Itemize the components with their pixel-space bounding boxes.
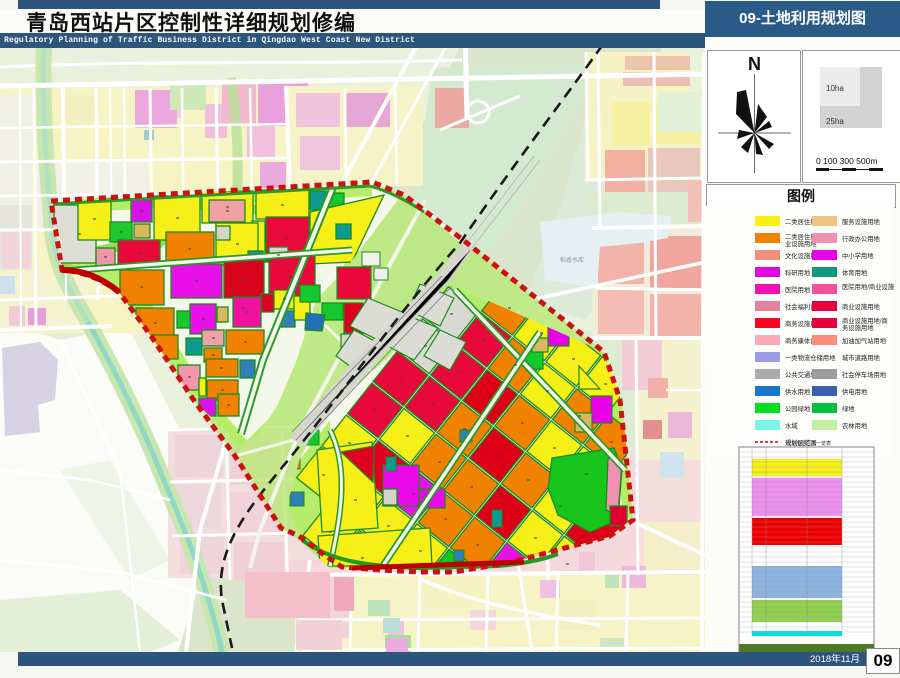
svg-text:25ha: 25ha [826, 117, 844, 126]
svg-text:供电用地: 供电用地 [842, 387, 868, 396]
svg-text:稻香水库: 稻香水库 [560, 256, 584, 264]
svg-text:医院用地/商业设施用地: 医院用地/商业设施用地 [842, 282, 894, 291]
svg-text:一类物流仓储用地: 一类物流仓储用地 [785, 353, 836, 362]
svg-text:体育用地: 体育用地 [842, 268, 868, 277]
svg-text:供水用地: 供水用地 [785, 387, 811, 396]
svg-text:水域: 水域 [785, 421, 798, 430]
svg-text:科研用地: 科研用地 [785, 268, 811, 277]
svg-text:10ha: 10ha [826, 84, 844, 93]
svg-text:服务设施用地: 服务设施用地 [842, 217, 880, 226]
svg-text:绿地: 绿地 [842, 404, 855, 413]
svg-text:规划用地汇总一览表: 规划用地汇总一览表 [786, 440, 831, 447]
svg-text:中小学用地: 中小学用地 [842, 251, 874, 260]
svg-text:医院用地: 医院用地 [785, 285, 811, 294]
svg-text:社会停车场用地: 社会停车场用地 [842, 370, 887, 379]
svg-text:0 100 300 500m: 0 100 300 500m [816, 156, 877, 166]
svg-text:加油加气站用地: 加油加气站用地 [842, 336, 887, 345]
svg-text:商业设施用地: 商业设施用地 [842, 302, 880, 311]
svg-text:务设施用地: 务设施用地 [842, 323, 874, 332]
svg-text:N: N [748, 54, 761, 74]
svg-text:农林用地: 农林用地 [842, 421, 868, 430]
svg-text:行政办公用地: 行政办公用地 [842, 234, 880, 243]
svg-text:公园绿地: 公园绿地 [785, 404, 811, 413]
svg-text:城市道路用地: 城市道路用地 [842, 353, 880, 362]
svg-text:商业设施用地/商: 商业设施用地/商 [842, 316, 888, 325]
